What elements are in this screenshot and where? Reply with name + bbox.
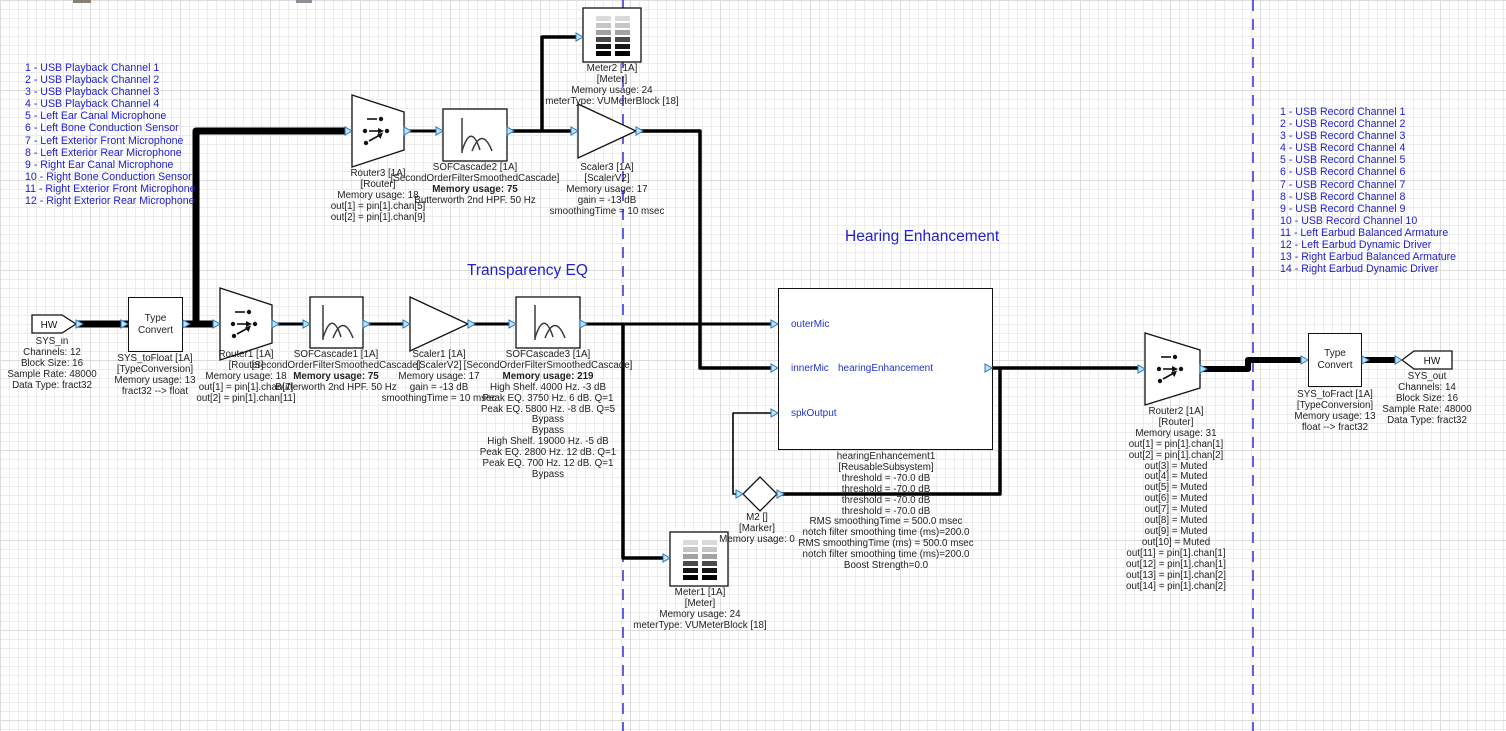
port-scaler3-in[interactable] (571, 127, 578, 135)
port-router3-in[interactable] (345, 127, 352, 135)
port-sysin-out[interactable] (76, 320, 83, 328)
port-typeconvert-in[interactable] (121, 320, 128, 328)
port-sofcascade1-out[interactable] (363, 320, 370, 328)
port-hearing-innermic-in[interactable] (771, 364, 778, 372)
port-router3-out[interactable] (404, 127, 411, 135)
port-meter1-in[interactable] (663, 554, 670, 562)
port-router1-in[interactable] (213, 320, 220, 328)
port-typeconvert2-in[interactable] (1301, 356, 1308, 364)
port-sofcascade2-out[interactable] (507, 127, 514, 135)
port-typeconvert-out[interactable] (183, 320, 190, 328)
port-hearing-out[interactable] (985, 364, 992, 372)
port-sofcascade3-out[interactable] (580, 320, 587, 328)
port-router2-out[interactable] (1200, 365, 1207, 373)
port-scaler1-out[interactable] (468, 320, 475, 328)
port-marker-m2-out[interactable] (777, 490, 784, 498)
port-sysout-in[interactable] (1395, 356, 1402, 364)
port-meter2-in[interactable] (576, 33, 583, 41)
port-typeconvert2-out[interactable] (1362, 356, 1369, 364)
port-router1-out[interactable] (272, 320, 279, 328)
port-scaler3-out[interactable] (636, 127, 643, 135)
port-router2-in[interactable] (1138, 365, 1145, 373)
port-sofcascade1-in[interactable] (303, 320, 310, 328)
port-sofcascade2-in[interactable] (436, 127, 443, 135)
port-sofcascade3-in[interactable] (509, 320, 516, 328)
port-hearing-outermic-in[interactable] (771, 320, 778, 328)
ports-layer (0, 0, 1506, 731)
designer-canvas[interactable]: HW HW Type Convert outerMic innerMic spk… (0, 0, 1506, 731)
port-hearing-spkoutput-in[interactable] (771, 409, 778, 417)
port-scaler1-in[interactable] (403, 320, 410, 328)
port-marker-m2-in[interactable] (736, 490, 743, 498)
